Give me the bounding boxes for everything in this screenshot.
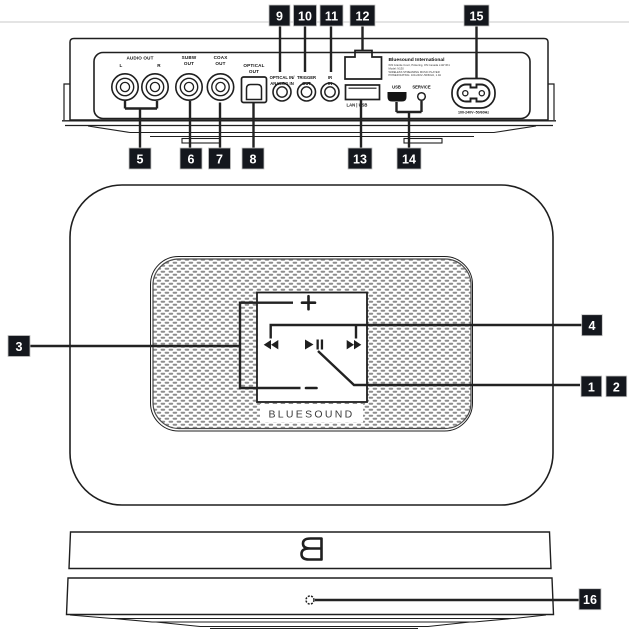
ethernet-port: [345, 51, 382, 80]
callout-badge-13: 13: [348, 148, 372, 169]
service-button: [418, 93, 426, 101]
subw-out-label: SUBW: [182, 55, 197, 60]
callout-badge-5: 5: [129, 148, 151, 169]
callout-badge-6: 6: [180, 148, 202, 169]
svg-text:2: 2: [613, 380, 620, 394]
usb-a-port: [346, 85, 380, 100]
info-line: Bluesound International: [389, 57, 446, 63]
callout-badge-15: 15: [464, 5, 489, 26]
svg-text:12: 12: [356, 10, 370, 24]
rear-left-step: [64, 84, 70, 120]
front-base-taper: [70, 615, 546, 619]
svg-text:15: 15: [470, 10, 484, 24]
service-label: SERVICE: [412, 85, 431, 90]
leader-audio-out-to-5: [125, 101, 157, 148]
subw-out-label: OUT: [184, 61, 194, 66]
power-rating-label: 100-240V~50/60Hz: [458, 111, 489, 115]
rear-right-step: [548, 84, 554, 120]
leader-usb-service-to-14: [397, 101, 422, 148]
front-view: [67, 532, 554, 629]
coax-out-label: COAX: [214, 55, 229, 60]
callout-badge-7: 7: [209, 148, 231, 169]
svg-text:11: 11: [325, 10, 338, 24]
optical-out-port: [242, 77, 267, 103]
coax-out-label: OUT: [215, 61, 225, 66]
svg-text:9: 9: [276, 10, 283, 24]
svg-text:13: 13: [353, 153, 367, 167]
front-base-taper: [156, 622, 470, 627]
callout-badge-2: 2: [606, 376, 627, 397]
rear-panel-view: AUDIO OUT L R SUBW OUT COAX OUT OPTICAL …: [62, 39, 556, 144]
audio-out-label: AUDIO OUT: [126, 56, 153, 61]
svg-text:6: 6: [188, 153, 195, 167]
audio-out-right-jack: [142, 74, 168, 100]
usb-micro-port: [388, 92, 407, 102]
trigger-out-label: OUT: [302, 81, 311, 86]
info-line: WIRELESS STREAMING MUSIC PLAYER: [389, 70, 440, 74]
svg-text:10: 10: [298, 10, 312, 24]
touch-control-panel: [257, 293, 367, 403]
callout-badge-3: 3: [8, 336, 30, 357]
optical-out-label: OUT: [249, 69, 259, 74]
callout-badge-1: 1: [581, 376, 602, 397]
left-channel-label: L: [120, 63, 123, 68]
power-inlet: [452, 79, 495, 109]
bluesound-logo-icon: [302, 539, 322, 560]
subwoofer-out-jack: [176, 74, 202, 100]
callout-badge-12: 12: [350, 5, 375, 26]
svg-text:14: 14: [402, 153, 416, 167]
callout-badge-8: 8: [242, 148, 264, 169]
right-channel-label: R: [157, 63, 161, 68]
rear-foot: [182, 139, 220, 144]
callout-badge-10: 10: [294, 5, 317, 26]
svg-text:4: 4: [589, 319, 596, 333]
optical-in-label: OPTICAL IN/: [270, 75, 296, 80]
info-line: Model: N130: [389, 66, 405, 70]
svg-text:8: 8: [250, 153, 257, 167]
optical-out-label: OPTICAL: [243, 63, 264, 68]
bluesound-wordmark: BLUESOUND: [268, 409, 354, 421]
info-line: POWER RATING: 100-240V~50/60Hz, 1.3A: [389, 73, 442, 77]
lan-usb-label: LAN | USB: [347, 103, 368, 108]
trigger-out-label: TRIGGER: [297, 75, 316, 80]
status-led: [306, 596, 314, 604]
optical-in-label: ANALOG IN: [270, 81, 294, 86]
ir-in-label: IR: [328, 75, 332, 80]
audio-out-left-jack: [112, 74, 138, 100]
svg-text:5: 5: [137, 153, 144, 167]
callout-badge-16: 16: [579, 589, 601, 610]
info-line: 633 Granite Court, Pickering, ON Canada …: [389, 63, 451, 67]
ir-in-label: IN: [328, 81, 332, 86]
coax-out-jack: [207, 74, 233, 100]
usb-label: USB: [392, 85, 401, 90]
callout-badge-4: 4: [582, 315, 603, 336]
svg-text:1: 1: [588, 380, 595, 394]
callout-badge-14: 14: [397, 148, 421, 169]
svg-text:7: 7: [216, 153, 223, 167]
rear-base-taper: [88, 126, 536, 133]
svg-text:3: 3: [16, 340, 23, 354]
svg-text:16: 16: [583, 593, 597, 607]
regulatory-info-block: Bluesound International 633 Granite Cour…: [389, 57, 451, 77]
device-diagram: AUDIO OUT L R SUBW OUT COAX OUT OPTICAL …: [0, 0, 629, 641]
callout-badge-11: 11: [320, 5, 343, 26]
callout-badge-9: 9: [269, 5, 290, 26]
